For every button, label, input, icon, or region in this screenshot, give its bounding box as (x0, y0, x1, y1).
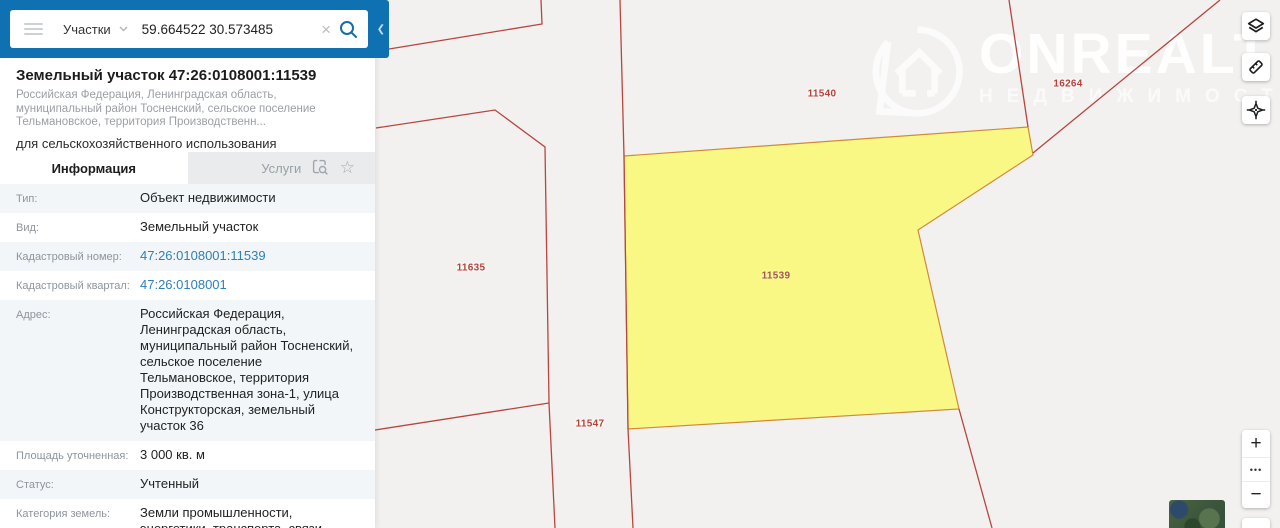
ruler-icon (1246, 57, 1266, 77)
zoom-more-button[interactable]: ••• (1242, 457, 1270, 481)
panel-tabs: Информация Услуги (0, 152, 375, 184)
fullscreen-button[interactable] (1242, 518, 1270, 528)
menu-icon[interactable] (24, 20, 43, 38)
cadastral-number-link[interactable]: 47:26:0108001:11539 (140, 248, 359, 264)
parcel-11539-highlight[interactable] (624, 127, 1033, 429)
cadastral-map[interactable]: ONREALT НЕДВИЖИМОСТЬ 11540 16264 11635 1… (375, 0, 1280, 528)
clear-search-icon[interactable]: × (315, 21, 337, 38)
measure-button[interactable] (1242, 53, 1270, 81)
search-category-value: Участки (63, 22, 111, 37)
zoom-controls: + ••• − (1242, 430, 1270, 508)
panel-content: Земельный участок 47:26:0108001:11539 Ро… (0, 58, 375, 528)
parcel-label-11547: 11547 (576, 419, 605, 430)
table-row-area: Площадь уточненная: 3 000 кв. м (0, 441, 375, 470)
tab-services[interactable]: Услуги (188, 152, 376, 184)
chevron-down-icon (119, 26, 128, 32)
attribute-table: Тип: Объект недвижимости Вид: Земельный … (0, 184, 375, 528)
parcel-label-11635: 11635 (457, 263, 486, 274)
cadastral-block-link[interactable]: 47:26:0108001 (140, 277, 359, 293)
search-box: Участки × (10, 10, 368, 48)
object-usage: для сельскохозяйственного использования (16, 136, 359, 151)
table-row-kind: Вид: Земельный участок (0, 213, 375, 242)
table-row-cadastral-block: Кадастровый квартал: 47:26:0108001 (0, 271, 375, 300)
table-row-cadastral-number: Кадастровый номер: 47:26:0108001:11539 (0, 242, 375, 271)
table-row-address: Адрес: Российская Федерация, Ленинградск… (0, 300, 375, 441)
layers-button[interactable] (1242, 12, 1270, 40)
table-row-land-category: Категория земель: Земли промышленности, … (0, 499, 375, 528)
parcel-label-11540: 11540 (808, 89, 837, 100)
table-row-status: Статус: Учтенный (0, 470, 375, 499)
search-button[interactable] (339, 20, 358, 39)
search-header: Участки × ❮ (0, 0, 389, 58)
zoom-in-button[interactable]: + (1242, 430, 1270, 457)
parcel-label-11539: 11539 (762, 271, 791, 282)
parcel-label-16264: 16264 (1053, 79, 1082, 90)
minimap-thumbnail[interactable] (1169, 500, 1225, 528)
object-summary: Земельный участок 47:26:0108001:11539 Ро… (0, 58, 375, 152)
table-row-type: Тип: Объект недвижимости (0, 184, 375, 213)
zoom-out-button[interactable]: − (1242, 481, 1270, 508)
info-sidebar: Земельный участок 47:26:0108001:11539 Ро… (0, 0, 375, 528)
parcel-boundaries-layer (375, 0, 1280, 528)
search-icon (339, 20, 358, 39)
search-category-dropdown[interactable]: Участки (63, 22, 128, 37)
locate-icon (1246, 100, 1266, 120)
layers-icon (1246, 16, 1266, 36)
tab-information[interactable]: Информация (0, 152, 188, 184)
object-title: Земельный участок 47:26:0108001:11539 (16, 67, 359, 84)
collapse-panel-button[interactable]: ❮ (375, 0, 387, 58)
search-input[interactable] (142, 22, 315, 37)
locate-button[interactable] (1242, 96, 1270, 124)
object-address-short: Российская Федерация, Ленинградская обла… (16, 89, 359, 130)
